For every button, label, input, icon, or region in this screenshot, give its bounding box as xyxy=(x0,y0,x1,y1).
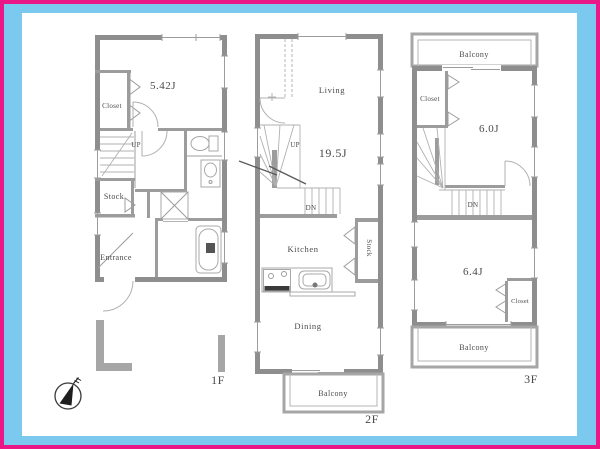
north-arrow-icon xyxy=(55,378,81,410)
stock-label-1f: Stock xyxy=(104,192,124,201)
floor-plan-image: 5.42J Closet UP Stock Entrance 1F xyxy=(0,0,600,449)
entrance-label-1f: Entrance xyxy=(100,253,132,262)
washing-machine-icon xyxy=(161,192,188,219)
up-label-2f: UP xyxy=(290,141,300,149)
stock-door-icon-2f xyxy=(344,227,355,275)
room-door-arc xyxy=(133,102,158,127)
dn-label-3f: DN xyxy=(468,201,479,209)
entrance-door-arc xyxy=(103,281,133,311)
area-label-2f: 19.5J xyxy=(319,146,347,160)
floor-plan-1f: 5.42J Closet UP Stock Entrance 1F xyxy=(94,34,228,387)
closet-bottom-label-3f: Closet xyxy=(511,298,529,305)
stairs-3f xyxy=(417,128,505,215)
floor-label-1f: 1F xyxy=(211,373,225,387)
porch-walls-1f xyxy=(96,320,225,372)
washbasin-icon xyxy=(201,160,220,187)
living-label: Living xyxy=(319,85,345,95)
balcony-label-2f: Balcony xyxy=(318,389,347,398)
stock-label-2f: Stock xyxy=(365,239,373,257)
closet-door-icon-3f-top xyxy=(448,75,459,126)
counter-bar xyxy=(290,292,355,296)
dn-label-2f: DN xyxy=(306,204,317,212)
entrance-opening xyxy=(104,276,135,283)
interior-walls-3f xyxy=(417,71,532,322)
room-size-label-3f-top: 6.0J xyxy=(479,123,499,135)
stairs-1f xyxy=(100,133,134,176)
exterior-walls-3f xyxy=(412,66,537,327)
floor-plan-3f: Balcony Closet 6.0J DN 6.4J Closet Balco… xyxy=(411,34,538,386)
kitchen-counter xyxy=(262,268,355,296)
stair-door-arc-2f xyxy=(260,93,285,123)
dining-label: Dining xyxy=(294,321,321,331)
balcony-bottom-label-3f: Balcony xyxy=(459,343,488,352)
closet-top-label-3f: Closet xyxy=(420,95,440,103)
floor-label-3f: 3F xyxy=(524,372,538,386)
room-door-arc-3f xyxy=(505,161,530,186)
balcony-door-3f xyxy=(442,65,501,72)
room-size-label-3f-bottom: 6.4J xyxy=(463,266,483,278)
balcony-top-label-3f: Balcony xyxy=(459,50,488,59)
hall-door-arc xyxy=(142,131,167,156)
overhead-dashed-lines xyxy=(285,39,292,98)
sink-icon xyxy=(299,271,330,289)
kitchen-label: Kitchen xyxy=(287,244,318,254)
closet-label-1f: Closet xyxy=(102,102,122,110)
floor-label-2f: 2F xyxy=(365,412,379,426)
toilet-icon xyxy=(191,136,218,151)
up-label-1f: UP xyxy=(131,141,141,149)
entrance-step xyxy=(98,233,133,268)
bathtub-icon xyxy=(196,226,221,273)
stove-icon xyxy=(264,270,291,292)
floor-plan-2f: Living 19.5J UP DN Kitchen Stock Dining … xyxy=(239,33,384,426)
stairs-2f xyxy=(260,125,340,216)
room-size-label-1f: 5.42J xyxy=(150,80,176,92)
floor-plans-drawing: 5.42J Closet UP Stock Entrance 1F xyxy=(0,0,600,449)
